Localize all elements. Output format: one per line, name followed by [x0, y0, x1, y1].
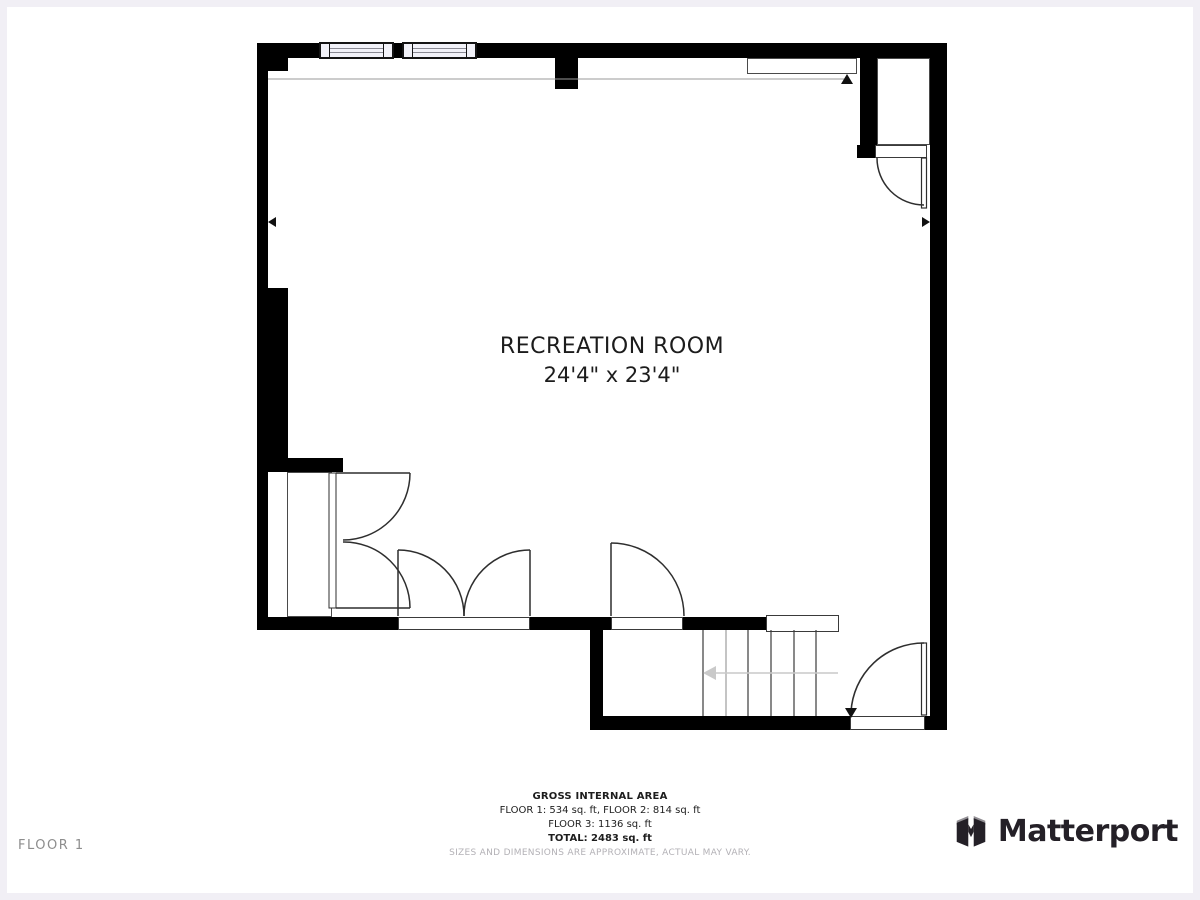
nook-topright	[877, 58, 930, 145]
french-door-threshold	[398, 617, 530, 630]
wall-notch-topleft	[268, 58, 288, 71]
window-glass-line	[413, 48, 466, 49]
floor-label: FLOOR 1	[18, 838, 85, 853]
window-1	[319, 42, 394, 59]
room-name: RECREATION ROOM	[410, 334, 814, 359]
closet-interior	[287, 472, 332, 617]
wall-left-lower	[257, 472, 268, 630]
single-door-threshold	[611, 617, 683, 630]
floorplan-canvas	[0, 0, 1200, 900]
wall-left-thick	[257, 288, 288, 472]
matterport-logo: Matterport	[954, 812, 1178, 850]
window-frame-post	[466, 44, 467, 57]
wall-topright-vertical	[860, 43, 877, 158]
window-glass-line	[330, 52, 383, 53]
area-line-2: FLOOR 3: 1136 sq. ft	[300, 819, 900, 830]
window-frame-post	[383, 44, 384, 57]
wall-bottom-a	[257, 617, 398, 630]
wall-stairwell-left	[590, 617, 603, 730]
wall-closet-top	[257, 458, 343, 472]
wall-bottom-c	[683, 617, 766, 630]
wall-right	[930, 43, 947, 730]
wall-stairwell-bottom	[590, 716, 850, 730]
wall-left-upper	[257, 43, 268, 290]
gross-area-title: GROSS INTERNAL AREA	[300, 791, 900, 802]
area-summary: GROSS INTERNAL AREA FLOOR 1: 534 sq. ft,…	[300, 791, 900, 858]
room-label: RECREATION ROOM 24'4" x 23'4"	[410, 334, 814, 387]
stairs-top-opening	[766, 615, 839, 632]
room-dimensions: 24'4" x 23'4"	[410, 363, 814, 387]
area-line-1: FLOOR 1: 534 sq. ft, FLOOR 2: 814 sq. ft	[300, 805, 900, 816]
wall-pillar	[555, 58, 578, 89]
window-glass-line	[413, 52, 466, 53]
matterport-m-icon	[954, 812, 988, 850]
area-disclaimer: SIZES AND DIMENSIONS ARE APPROXIMATE, AC…	[300, 848, 900, 858]
window-frame-post	[412, 44, 413, 57]
wall-nook-endcap	[857, 145, 875, 158]
matterport-wordmark: Matterport	[998, 814, 1178, 849]
area-total: TOTAL: 2483 sq. ft	[300, 833, 900, 844]
window-frame-post	[329, 44, 330, 57]
window-2	[402, 42, 477, 59]
exterior-door-threshold	[850, 716, 925, 730]
wall-stairwell-bottom-corner	[925, 716, 947, 730]
counter-topright	[747, 58, 857, 74]
nook-door-header	[875, 145, 927, 158]
window-glass-line	[330, 48, 383, 49]
